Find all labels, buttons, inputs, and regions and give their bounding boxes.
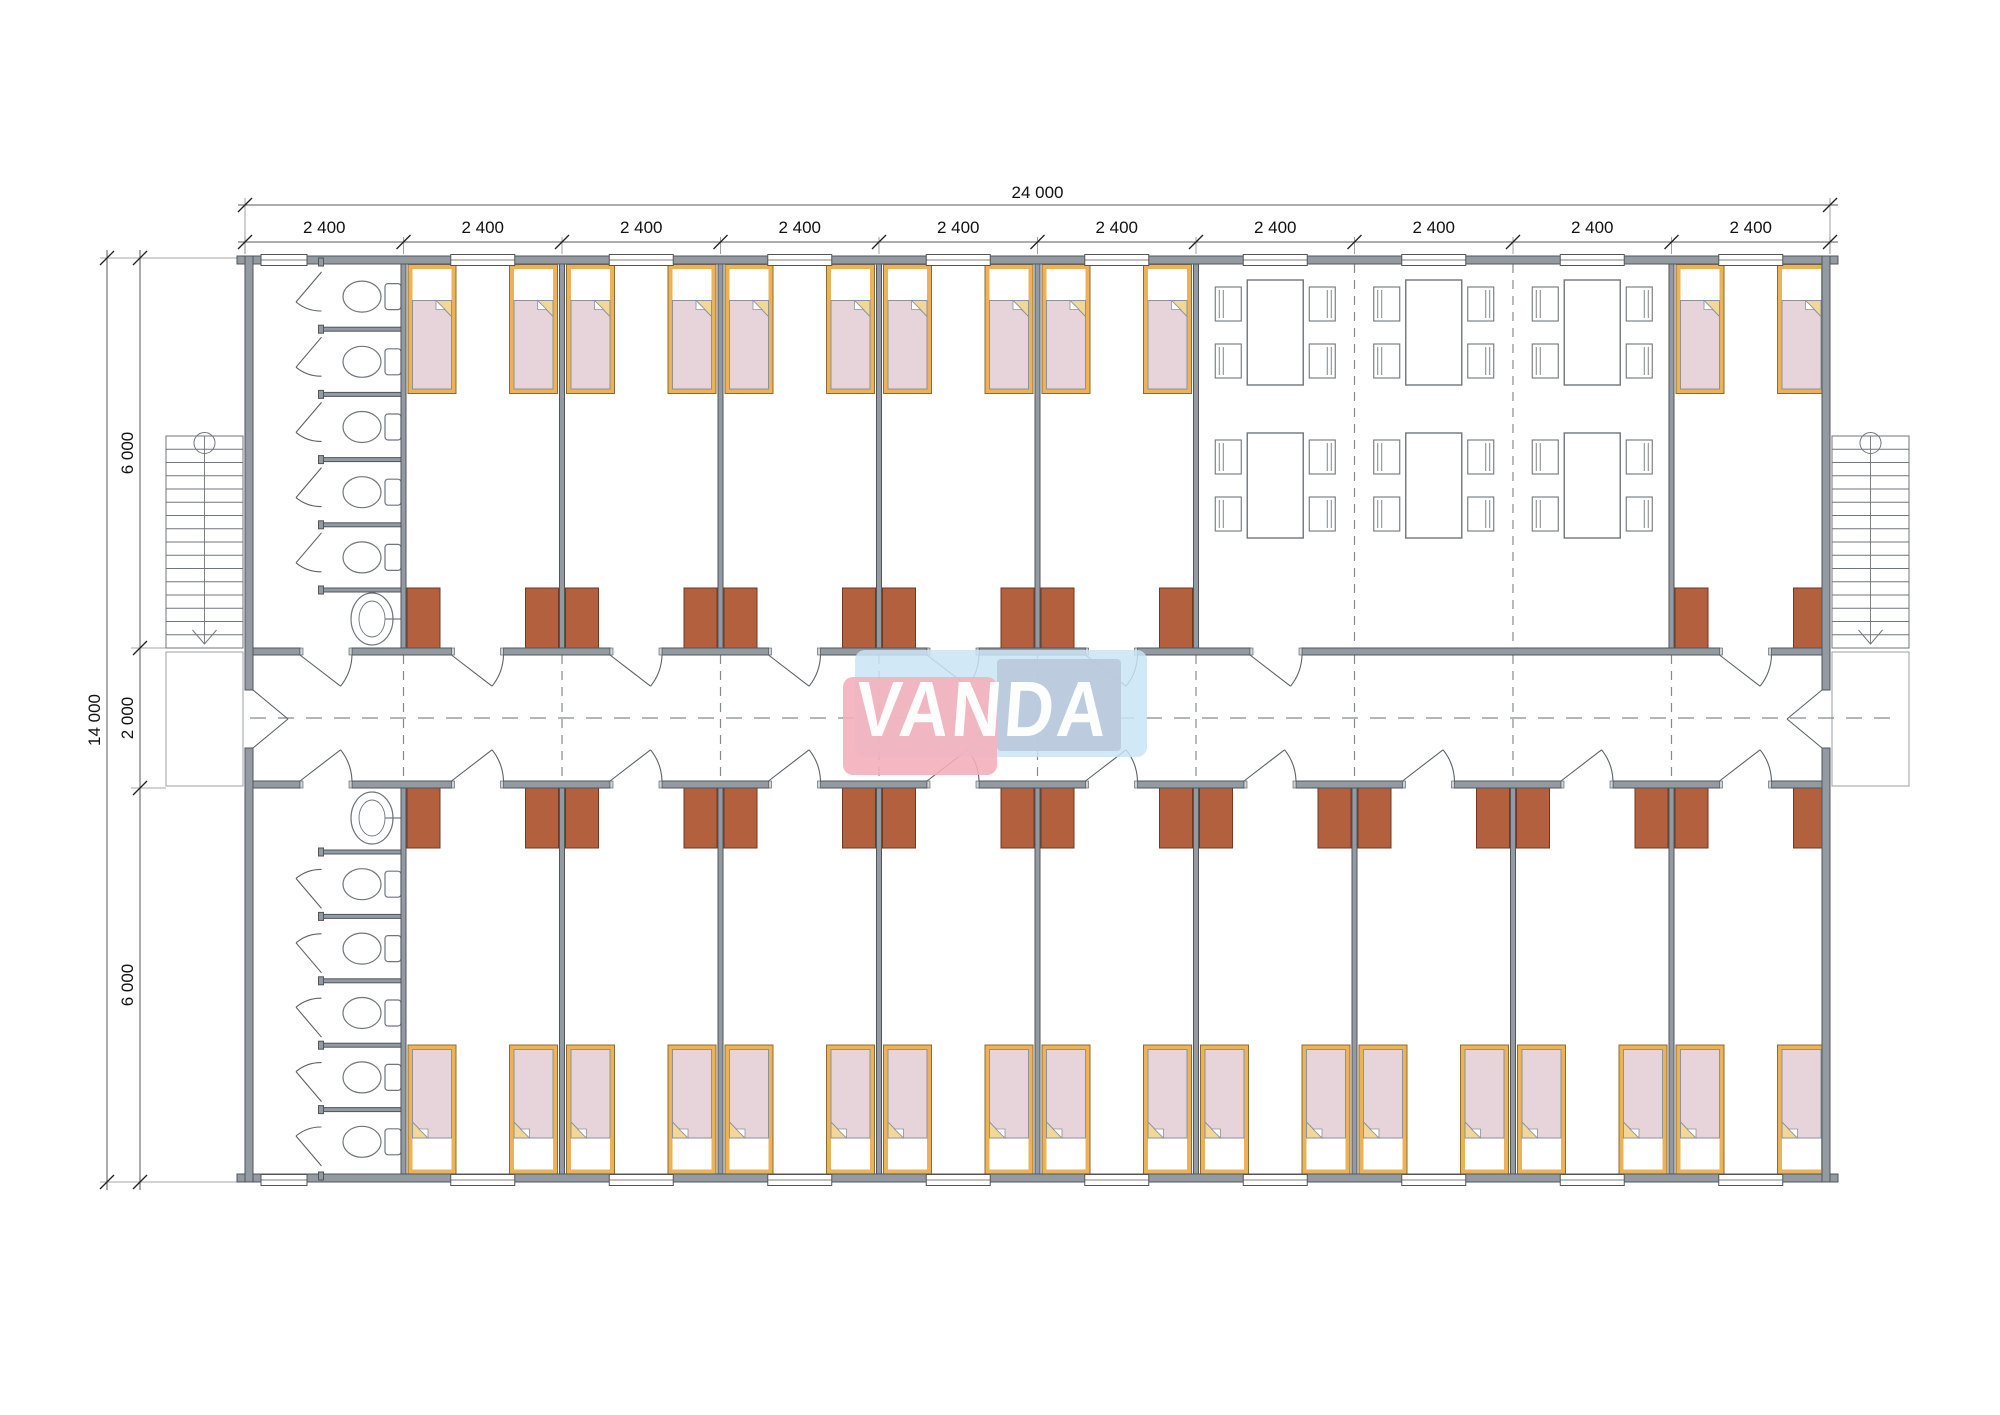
stall-front-stub [319,456,324,464]
sink-icon [351,593,401,645]
stall-door-leaf [296,533,322,563]
door-swing-arc [1760,750,1771,781]
toilet-icon [343,281,401,312]
stall-divider [321,914,402,918]
door-jamb [976,648,979,655]
chair [1374,440,1400,474]
door-jamb [1293,781,1296,788]
door-jamb [769,781,772,788]
dining-table [1247,433,1303,538]
window [1085,255,1149,266]
door-jamb [927,648,930,655]
door-leaf [610,655,651,686]
window [261,1175,307,1186]
toilet-tank [385,871,401,897]
wardrobe [843,788,876,848]
wall [245,748,253,1182]
window [1560,1175,1624,1186]
stall-door-leaf [296,468,322,498]
window [1085,1175,1149,1186]
partition-wall [718,264,723,648]
sink-icon [351,792,401,844]
toilet-icon [343,933,401,964]
chair [1468,440,1494,474]
stall-door-arc [296,367,322,376]
door-swing-arc [1285,750,1296,781]
stall-door-arc [296,498,322,507]
door-leaf [452,750,493,781]
wardrobe [1675,588,1708,648]
door-jamb [927,781,930,788]
stall-front-stub [319,1106,324,1114]
mattress [730,1050,769,1139]
mattress [1148,1050,1187,1139]
dining-table [1406,433,1462,538]
door-swing-arc [968,750,979,781]
drawing-page: 24 0002 4002 4002 4002 4002 4002 4002 40… [0,0,2000,1415]
entrance-door-leaf [1787,719,1822,748]
partition-wall [1194,788,1199,1174]
dimension-label: 2 400 [461,218,504,237]
wardrobe [407,788,440,848]
toilet-icon [343,998,401,1029]
door-swing-arc [341,655,352,686]
wardrobe [1517,788,1550,848]
bed [510,1045,558,1174]
stall-divider [321,1043,402,1047]
wardrobe [1358,788,1391,848]
door-swing-arc [651,655,662,686]
dining-table-group [1374,280,1494,385]
mattress [514,301,553,390]
staircase-left [166,433,243,787]
mattress [1782,301,1821,390]
door-jamb [659,648,662,655]
wardrobe [1635,788,1668,848]
chair [1532,497,1558,531]
dimension-label: 2 400 [1571,218,1614,237]
partition-wall [401,788,406,1174]
door-jamb [1720,648,1723,655]
wall [1613,781,1720,788]
toilet-icon [343,477,401,508]
wall [1138,781,1245,788]
dimension-label: 24 000 [1012,183,1064,202]
bed [1778,1045,1826,1174]
toilet-icon [343,346,401,377]
door-leaf [769,750,810,781]
toilet-icon [343,869,401,900]
door-swing-arc [1291,655,1302,686]
toilet-tank [385,414,401,440]
partition-wall [1669,788,1674,1174]
wardrobe [1318,788,1351,848]
stall-front-stub [319,521,324,529]
bed [1359,1045,1407,1174]
door-swing-arc [1126,655,1137,686]
stall-front-stub [319,977,324,985]
bed [884,1045,932,1174]
door-leaf [769,655,810,686]
door-swing-arc [809,750,820,781]
door-leaf [1244,750,1285,781]
wardrobe [407,588,440,648]
chair [1309,497,1335,531]
partition-wall [560,264,565,648]
toilet-bowl [343,412,381,443]
chair [1215,497,1241,531]
window [609,1175,673,1186]
window [926,1175,990,1186]
stall-door-arc [296,302,322,311]
toilet-bowl [343,869,381,900]
chair [1532,344,1558,378]
wardrobe [1160,788,1193,848]
dining-table-group [1374,433,1494,538]
bed [985,1045,1033,1174]
door-jamb [452,648,455,655]
door-leaf [1403,750,1444,781]
dimension-label: 6 000 [118,432,137,475]
wall [504,781,611,788]
mattress [1681,301,1720,390]
dining-table [1564,280,1620,385]
door-jamb [659,781,662,788]
bed [1461,1045,1509,1174]
dining-table [1406,280,1462,385]
wall [1822,256,1830,690]
door-jamb [300,781,303,788]
stall-door-arc [296,1063,322,1072]
chair [1374,287,1400,321]
window [451,255,515,266]
toilet-tank [385,936,401,962]
wardrobe [883,788,916,848]
stall-door-arc [296,934,322,943]
wall [662,781,769,788]
chair [1309,287,1335,321]
door-leaf [927,750,968,781]
window [1402,1175,1466,1186]
toilet-tank [385,1064,401,1090]
stall-front-stub [319,912,324,920]
chair [1215,440,1241,474]
wall [253,781,300,788]
bed [985,265,1033,394]
wardrobe [566,788,599,848]
door-jamb [1244,781,1247,788]
wardrobe [1675,788,1708,848]
window [926,255,990,266]
stall-door-arc [296,1127,322,1136]
dimension-label: 14 000 [85,694,104,746]
stall-front-stub [319,390,324,398]
stall-front-stub [319,848,324,856]
window [768,255,832,266]
bed [1302,1045,1350,1174]
wall [1302,648,1720,655]
entrance-door-leaf [253,719,288,748]
door-jamb [1086,648,1089,655]
dimension-label: 2 400 [1254,218,1297,237]
mattress [1465,1050,1504,1139]
toilet-tank [385,479,401,505]
door-jamb [1720,781,1723,788]
furniture [343,265,1827,1175]
stall-door-leaf [296,943,322,973]
toilet-tank [385,1000,401,1026]
wall [1138,648,1251,655]
mattress [888,1050,927,1139]
mattress [888,301,927,390]
dining-table-group [1532,280,1652,385]
bed [884,265,932,394]
bed [827,1045,875,1174]
door-jamb [1135,648,1138,655]
door-leaf [300,750,341,781]
partition-wall [718,788,723,1174]
window [1243,1175,1307,1186]
partition-wall [877,788,882,1174]
bed [567,1045,615,1174]
door-jamb [452,781,455,788]
stall-door-arc [296,432,322,441]
door-swing-arc [1602,750,1613,781]
door-leaf [300,655,341,686]
bed [1201,1045,1249,1174]
door-leaf [1086,655,1127,686]
door-swing-arc [492,655,503,686]
stall-front-stub [319,1172,324,1180]
chair [1468,287,1494,321]
mattress [1148,301,1187,390]
toilet-icon [343,542,401,573]
toilet-icon [343,1126,401,1157]
mattress [831,301,870,390]
mattress [1205,1050,1244,1139]
stall-divider [321,523,402,527]
wall [1822,748,1830,1182]
stall-divider [321,458,402,462]
mattress [571,1050,610,1139]
bed [510,265,558,394]
door-jamb [1299,648,1302,655]
stall-door-leaf [296,1007,322,1037]
stall-divider [321,327,402,331]
door-jamb [1250,648,1253,655]
stall-door-arc [296,869,322,878]
chair [1309,344,1335,378]
bed [1619,1045,1667,1174]
chair [1532,440,1558,474]
sanitary-wall [319,588,402,592]
door-swing-arc [1126,750,1137,781]
door-leaf [927,655,968,686]
mattress [1047,1050,1086,1139]
door-jamb [1769,781,1772,788]
toilet-icon [343,1062,401,1093]
window [1719,1175,1783,1186]
chair [1215,344,1241,378]
wardrobe [684,788,717,848]
stall-front-stub [319,586,324,594]
dining-table-group [1215,433,1335,538]
wardrobe [526,788,559,848]
staircase-right [1832,433,1909,787]
wardrobe [1200,788,1233,848]
dimension-label: 2 400 [1095,218,1138,237]
door-swing-arc [968,655,979,686]
dimension-label: 2 400 [620,218,663,237]
partition-wall [401,264,406,648]
window [1719,255,1783,266]
stall-door-leaf [296,878,322,908]
mattress [990,301,1029,390]
wardrobe [526,588,559,648]
door-jamb [818,648,821,655]
stall-divider [321,1108,402,1112]
wardrobe [1041,788,1074,848]
wardrobe [883,588,916,648]
mattress [1681,1050,1720,1139]
toilet-tank [385,1129,401,1155]
wardrobe [1001,788,1034,848]
partition-wall [1669,264,1674,648]
toilet-bowl [343,998,381,1029]
mattress [673,1050,712,1139]
wall [504,648,611,655]
partition-wall [1035,264,1040,648]
dimension-label: 2 400 [1729,218,1772,237]
chair [1532,287,1558,321]
toilet-bowl [343,1062,381,1093]
chair [1374,497,1400,531]
door-jamb [1561,781,1564,788]
chair [1626,440,1652,474]
wall [352,648,452,655]
partition-wall [560,788,565,1174]
stall-door-leaf [296,337,322,367]
stair-landing [1832,652,1909,786]
door-leaf [1561,750,1602,781]
wall [352,781,452,788]
door-leaf [1720,750,1761,781]
door-jamb [1135,781,1138,788]
toilet-bowl [343,477,381,508]
door-leaf [1250,655,1291,686]
bed [827,265,875,394]
bed [567,265,615,394]
wardrobe [1041,588,1074,648]
bed [408,265,456,394]
bed [408,1045,456,1174]
dimension-label: 2 400 [303,218,346,237]
dining-table-group [1215,280,1335,385]
floor-plan: 24 0002 4002 4002 4002 4002 4002 4002 40… [0,0,2000,1415]
dimension-label: 2 400 [778,218,821,237]
door-jamb [1403,781,1406,788]
door-jamb [769,648,772,655]
door-jamb [501,781,504,788]
door-leaf [1720,655,1761,686]
stall-door-leaf [296,1136,322,1166]
stall-door-arc [296,998,322,1007]
door-jamb [349,781,352,788]
mattress [1782,1050,1821,1139]
wardrobe [684,588,717,648]
window [451,1175,515,1186]
chair [1626,287,1652,321]
door-swing-arc [651,750,662,781]
stair-landing [166,652,243,786]
door-swing-arc [492,750,503,781]
chair [1626,497,1652,531]
door-jamb [1452,781,1455,788]
toilet-bowl [343,542,381,573]
door-jamb [610,648,613,655]
dining-table-group [1532,433,1652,538]
window [1560,255,1624,266]
partition-wall [1194,264,1199,648]
door-swing-arc [1760,655,1771,686]
chair [1468,344,1494,378]
wardrobe [1477,788,1510,848]
wall [821,648,928,655]
door-jamb [300,648,303,655]
stall-divider [321,392,402,396]
dining-table [1247,280,1303,385]
mattress [730,301,769,390]
door-jamb [1086,781,1089,788]
chair [1626,344,1652,378]
wall [979,781,1086,788]
mattress [413,301,452,390]
wall [662,648,769,655]
mattress [1522,1050,1561,1139]
bed [1144,1045,1192,1174]
bed [725,1045,773,1174]
door-jamb [610,781,613,788]
window [261,255,307,266]
door-swing-arc [809,655,820,686]
entrance-door-leaf [253,690,288,719]
bed [1676,1045,1724,1174]
wall [821,781,928,788]
door-jamb [1610,781,1613,788]
stall-door-leaf [296,1072,322,1102]
wardrobe [566,588,599,648]
mattress [1624,1050,1663,1139]
toilet-tank [385,284,401,310]
chair [1215,287,1241,321]
mattress [831,1050,870,1139]
partition-wall [877,264,882,648]
bed [725,265,773,394]
bed [1778,265,1826,394]
wall [1296,781,1403,788]
mattress [571,301,610,390]
bed [668,1045,716,1174]
wall [1772,648,1823,655]
partition-wall [1511,788,1516,1174]
door-jamb [501,648,504,655]
mattress [413,1050,452,1139]
bed [1144,265,1192,394]
wardrobe [843,588,876,648]
bed [1042,265,1090,394]
wall [245,256,253,690]
wardrobe [724,588,757,648]
